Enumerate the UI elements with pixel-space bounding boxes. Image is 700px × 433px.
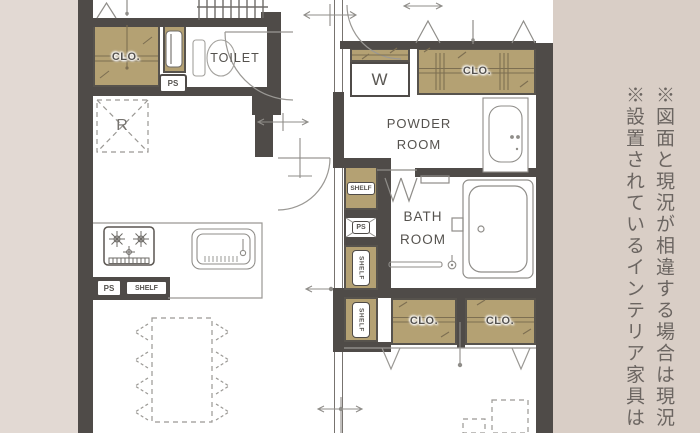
background-left-strip	[0, 0, 78, 433]
closet-label-bottom-left: CLO.	[402, 314, 446, 328]
closet-label-top-right: CLO.	[455, 64, 499, 78]
wall-center-dark-upper	[333, 92, 344, 160]
wall-hall-stub	[255, 93, 273, 157]
toilet-room-text: TOILET	[210, 51, 260, 65]
bath-room-label: BATH ROOM	[390, 206, 456, 250]
powder-room-line1: POWDER	[387, 113, 452, 134]
fridge-label: R	[97, 100, 148, 152]
closet-label-bottom-right: CLO.	[478, 314, 522, 328]
bath-room-line1: BATH	[403, 205, 442, 228]
wall-bath-bottom	[378, 288, 536, 298]
pipe-shaft-top-left	[163, 25, 186, 73]
wall-stair-post	[261, 12, 281, 27]
wall-top-left	[93, 18, 281, 27]
wall-left-outer	[78, 0, 93, 433]
powder-room-line2: ROOM	[397, 134, 441, 155]
ps-badge-kitchen: PS	[96, 279, 122, 297]
wall-center-dark-lower	[333, 288, 344, 350]
toilet-room-label: TOILET	[196, 49, 274, 66]
wall-closet-divider	[457, 298, 465, 348]
wall-powder-bath	[415, 168, 536, 177]
wall-right-outer	[536, 43, 553, 433]
washer-top-strip	[350, 48, 410, 62]
wall-column-div-1	[344, 210, 378, 216]
bath-room-line2: ROOM	[400, 228, 446, 251]
wall-top-right	[340, 41, 536, 49]
closet-label-top-left: CLO.	[104, 50, 148, 64]
center-partition-wall	[334, 0, 343, 433]
floor-plan: TOILET POWDER ROOM BATH ROOM CLO. CLO. C…	[0, 0, 700, 433]
wall-column-bottom	[333, 342, 391, 352]
shelf-badge-vertical-2: SHELF	[352, 302, 370, 338]
shelf-badge-kitchen: SHELF	[125, 280, 168, 296]
wall-column-div-3	[344, 290, 378, 297]
shelf-badge-middle: SHELF	[347, 182, 375, 195]
ps-badge-middle: PS	[352, 221, 370, 234]
disclaimer-line1: ※図面と現況が相違する場合は現況	[648, 85, 678, 433]
disclaimer-line2: ※設置されているインテリア家具は	[618, 85, 648, 433]
wall-column-div-2	[344, 239, 378, 245]
ps-badge-top-left: PS	[159, 74, 187, 93]
disclaimer-notes: ※図面と現況が相違する場合は現況 ※設置されているインテリア家具は	[606, 85, 678, 433]
washer-label: W	[350, 62, 410, 97]
powder-room-label: POWDER ROOM	[377, 113, 461, 155]
shelf-badge-vertical-1: SHELF	[352, 250, 370, 286]
